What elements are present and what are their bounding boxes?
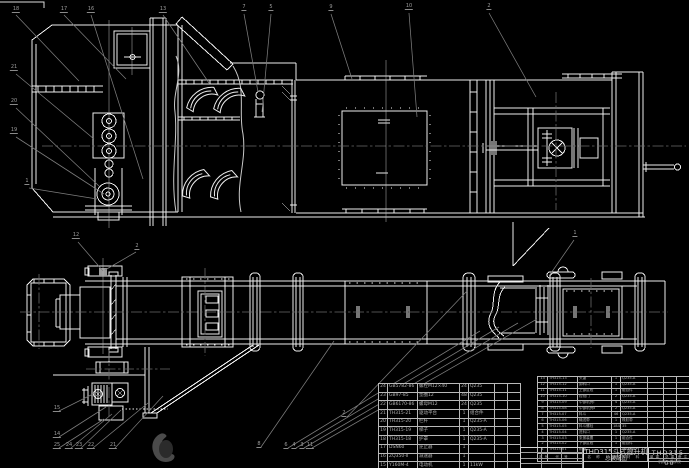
callout-label: 18 xyxy=(12,7,20,13)
bom-cell: 48 xyxy=(460,392,469,401)
bom-cell: DSN60 xyxy=(388,444,418,453)
callout-label: 1 xyxy=(24,179,29,185)
callout-label: 2 xyxy=(341,411,346,417)
callout-label: 5 xyxy=(268,5,273,11)
callout-label: 13 xyxy=(159,7,167,13)
bom-cell: Y160M-4 xyxy=(388,462,418,468)
top-view xyxy=(32,17,681,226)
callout-label: 7 xyxy=(241,5,246,11)
signature-grid xyxy=(521,448,584,468)
bom-cell: 16 xyxy=(379,453,388,462)
bom-cell xyxy=(495,436,508,445)
callout-label: 22 xyxy=(87,443,95,449)
callout-label: 15 xyxy=(53,406,61,412)
bom-cell: 栏杆 xyxy=(418,418,460,427)
bom-cell: GB6170-86 xyxy=(388,401,418,410)
bom-cell: 17 xyxy=(379,444,388,453)
callout-label: 10 xyxy=(405,4,413,10)
bom-cell: 15 xyxy=(379,462,388,468)
bom-cell xyxy=(508,436,521,445)
cursor-smudge xyxy=(152,433,174,462)
bom-cell: Q235-A xyxy=(469,418,495,427)
cad-canvas: 1817161375910221201911221151425242322218… xyxy=(0,0,689,468)
bom-cell: 护罩 xyxy=(418,436,460,445)
callout-label: 14 xyxy=(53,432,61,438)
callout-label: 24 xyxy=(65,443,73,449)
bom-cell: GB5782-86 xyxy=(388,384,418,393)
bom-cell: 1 xyxy=(460,427,469,436)
bom-cell xyxy=(495,444,508,453)
bom-cell: 21 xyxy=(379,410,388,419)
bom-cell xyxy=(495,427,508,436)
bom-cell: 20 xyxy=(379,418,388,427)
callout-label: 20 xyxy=(10,99,18,105)
bom-cell xyxy=(508,401,521,410)
bom-cell: 1 xyxy=(460,453,469,462)
bom-cell: Q235-A xyxy=(469,427,495,436)
callout-label: 12 xyxy=(72,233,80,239)
bom-cell: 1 xyxy=(460,436,469,445)
bom-cell: Q235 xyxy=(469,384,495,393)
bom-cell: 11kW xyxy=(469,462,495,468)
callout-label: 9 xyxy=(328,5,333,11)
bom-cell: 19 xyxy=(379,427,388,436)
callout-label: 19 xyxy=(10,128,18,134)
callout-label: 3 xyxy=(299,443,304,449)
bom-cell: Q235-A xyxy=(469,436,495,445)
title-area: THD315斗式提升机 总装配图 xyxy=(584,448,649,468)
bom-cell xyxy=(495,384,508,393)
callout-label: 11 xyxy=(306,443,314,449)
bom-cell: 1 xyxy=(460,444,469,453)
buckets xyxy=(180,84,246,200)
bom-cell xyxy=(495,392,508,401)
callout-label: 21 xyxy=(10,65,18,71)
callout-label: 16 xyxy=(87,7,95,13)
bom-cell: 22 xyxy=(379,401,388,410)
bom-cell: 24 xyxy=(460,384,469,393)
callout-label: 2 xyxy=(134,244,139,250)
bom-cell xyxy=(469,453,495,462)
drawing-number-area: THD315-00 机械工程学院 xyxy=(649,448,689,468)
bom-cell xyxy=(495,418,508,427)
bom-cell xyxy=(495,453,508,462)
bom-cell: 23 xyxy=(379,392,388,401)
bom-cell: 垫圈12 xyxy=(418,392,460,401)
callout-label: 21 xyxy=(109,443,117,449)
bom-cell xyxy=(495,462,508,468)
bom-cell xyxy=(508,410,521,419)
bom-cell: 1 xyxy=(460,462,469,468)
bom-cell: ZQ350-Ⅱ xyxy=(388,453,418,462)
bom-cell: 1 xyxy=(460,410,469,419)
organization: 机械工程学院 xyxy=(649,459,689,464)
projection-centerlines xyxy=(103,20,386,354)
callout-label: 17 xyxy=(60,7,68,13)
callout-label: 8 xyxy=(256,442,261,448)
bom-cell: TH315-21 xyxy=(388,410,418,419)
bom-cell xyxy=(508,444,521,453)
bom-cell xyxy=(469,444,495,453)
bom-cell xyxy=(495,401,508,410)
bom-cell: TH315-18 xyxy=(388,436,418,445)
callout-label: 4 xyxy=(291,443,296,449)
bom-cell: Q235 xyxy=(469,401,495,410)
bom-cell: 驱动平台 xyxy=(418,410,460,419)
bom-cell xyxy=(495,410,508,419)
bom-cell xyxy=(508,453,521,462)
bom-cell: 1 xyxy=(460,418,469,427)
bom-cell: 逆止器 xyxy=(418,444,460,453)
bom-cell: 螺母M12 xyxy=(418,401,460,410)
chute-curves xyxy=(174,56,244,212)
bom-cell xyxy=(508,384,521,393)
bom-cell xyxy=(508,462,521,468)
frame-fragment xyxy=(0,2,44,8)
title-block: THD315斗式提升机 总装配图 THD315-00 机械工程学院 xyxy=(520,447,689,468)
drawing-number: THD315-00 xyxy=(649,448,689,459)
bom-cell: 梯子 xyxy=(418,427,460,436)
bom-cell: 24 xyxy=(379,384,388,393)
callout-label: 23 xyxy=(75,443,83,449)
product-title: THD315斗式提升机 xyxy=(584,448,647,456)
bom-cell: TH315-19 xyxy=(388,427,418,436)
bom-cell xyxy=(508,418,521,427)
callout-label: 2 xyxy=(486,4,491,10)
bom-cell: 螺栓M12×40 xyxy=(418,384,460,393)
bom-cell xyxy=(508,427,521,436)
callout-label: 6 xyxy=(283,443,288,449)
bom-cell: GB97-85 xyxy=(388,392,418,401)
callout-label: 1 xyxy=(572,231,577,237)
sheet-title: 总装配图 xyxy=(605,456,627,462)
bom-cell: 24 xyxy=(460,401,469,410)
bom-cell: 减速器 xyxy=(418,453,460,462)
bom-cell xyxy=(508,392,521,401)
bom-cell: 组合件 xyxy=(469,410,495,419)
bom-cell: 电动机 xyxy=(418,462,460,468)
bom-cell: TH315-20 xyxy=(388,418,418,427)
callout-label: 25 xyxy=(53,443,61,449)
bom-cell: Q235 xyxy=(469,392,495,401)
bom-cell: 18 xyxy=(379,436,388,445)
